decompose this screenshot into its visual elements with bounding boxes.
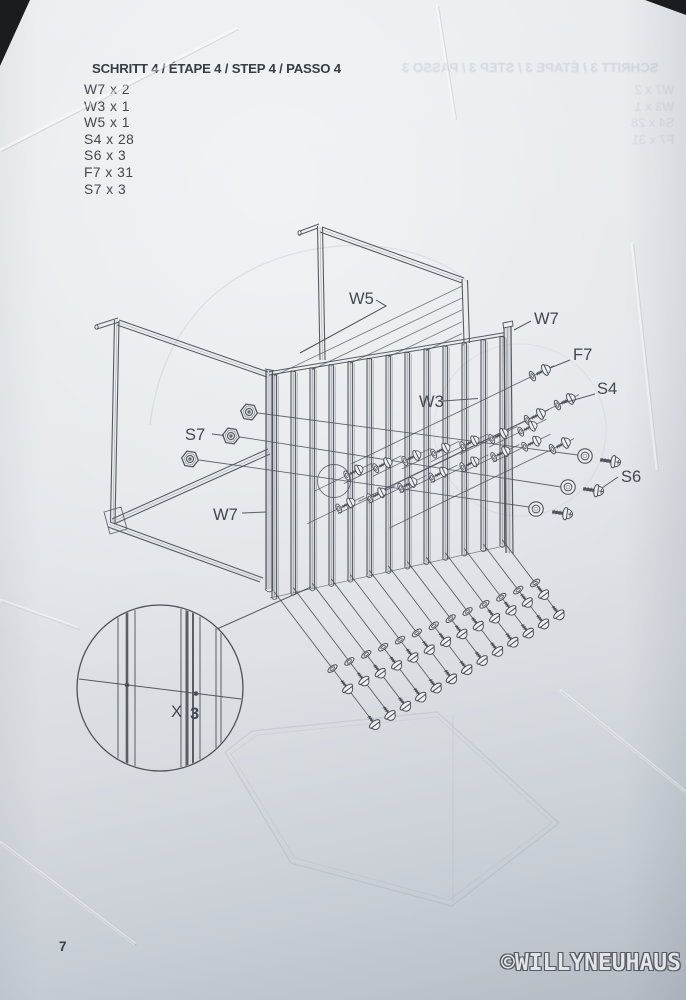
watermark: ©WILLYNEUHAUS bbox=[501, 950, 681, 976]
detail-multiplier-count: 3 bbox=[190, 705, 199, 723]
detail-multiplier-x: X bbox=[171, 703, 182, 721]
label-s7: S7 bbox=[185, 426, 205, 444]
label-s6: S6 bbox=[621, 468, 641, 486]
manual-page-photo: SCHRITT 3 / ÉTAPE 3 / STEP 3 / PASSO 3 W… bbox=[0, 0, 686, 1000]
label-w5: W5 bbox=[349, 290, 374, 308]
label-w3: W3 bbox=[419, 393, 444, 411]
label-w7-left-post: W7 bbox=[213, 506, 238, 524]
page-number: 7 bbox=[59, 939, 67, 954]
assembly-diagram: W5 W7 F7 S4 W3 S6 S7 W7 X 3 bbox=[0, 0, 686, 1000]
label-w7-right-post: W7 bbox=[534, 310, 559, 328]
label-s4: S4 bbox=[597, 380, 617, 398]
label-f7: F7 bbox=[573, 346, 592, 364]
